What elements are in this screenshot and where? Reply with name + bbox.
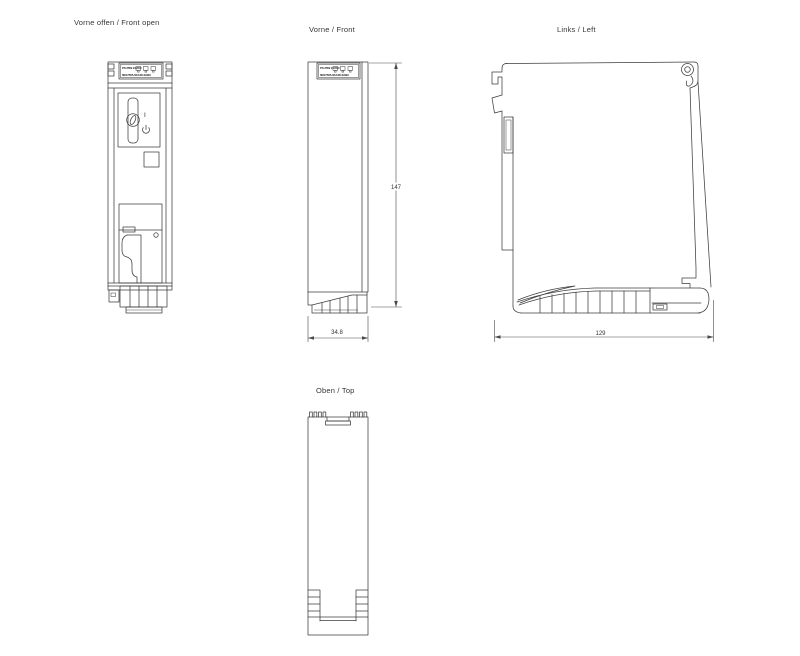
supply-connector bbox=[119, 204, 162, 283]
dimension-drawing-svg: PS 25W 24VDC 6ES7505-0KA00-0AB0 bbox=[0, 0, 800, 656]
height-dimension: 147 bbox=[369, 63, 404, 307]
dim-width-value: 34.8 bbox=[331, 330, 343, 336]
depth-dimension: 129 bbox=[495, 300, 714, 342]
power-on-mark: I bbox=[144, 112, 146, 119]
power-symbol-icon bbox=[143, 125, 150, 133]
front-foot bbox=[308, 292, 367, 313]
dim-depth-value: 129 bbox=[595, 331, 606, 337]
vent-teeth bbox=[310, 412, 367, 417]
screw-icon bbox=[154, 233, 158, 237]
din-rail-recess bbox=[326, 417, 351, 425]
top-view-drawing bbox=[308, 412, 368, 635]
front-open-nameplate: PS 25W 24VDC 6ES7505-0KA00-0AB0 bbox=[119, 63, 163, 79]
operator-panel: I bbox=[118, 93, 160, 147]
nameplate-line2: 6ES7505-0KA00-0AB0 bbox=[122, 73, 151, 77]
front-view-drawing: PS 25W 24VDC 6ES7505-0KA00-0AB0 bbox=[308, 62, 404, 342]
width-dimension: 34.8 bbox=[308, 316, 368, 342]
dim-height-value: 147 bbox=[391, 185, 402, 191]
left-view-drawing: 129 bbox=[492, 62, 714, 342]
ribbed-base-profile bbox=[513, 286, 700, 313]
label-window bbox=[144, 152, 159, 167]
nameplate-line2: 6ES7505-0KA00-0AB0 bbox=[320, 73, 349, 77]
mounting-screw-icon bbox=[682, 64, 694, 87]
bottom-connector-guides bbox=[308, 590, 368, 621]
drawing-sheet: Vorne offen / Front open Vorne / Front L… bbox=[0, 0, 800, 656]
front-open-view-drawing: PS 25W 24VDC 6ES7505-0KA00-0AB0 bbox=[108, 62, 172, 313]
terminal-block-profile bbox=[650, 288, 709, 313]
front-nameplate: PS 25W 24VDC 6ES7505-0KA00-0AB0 bbox=[317, 63, 360, 79]
